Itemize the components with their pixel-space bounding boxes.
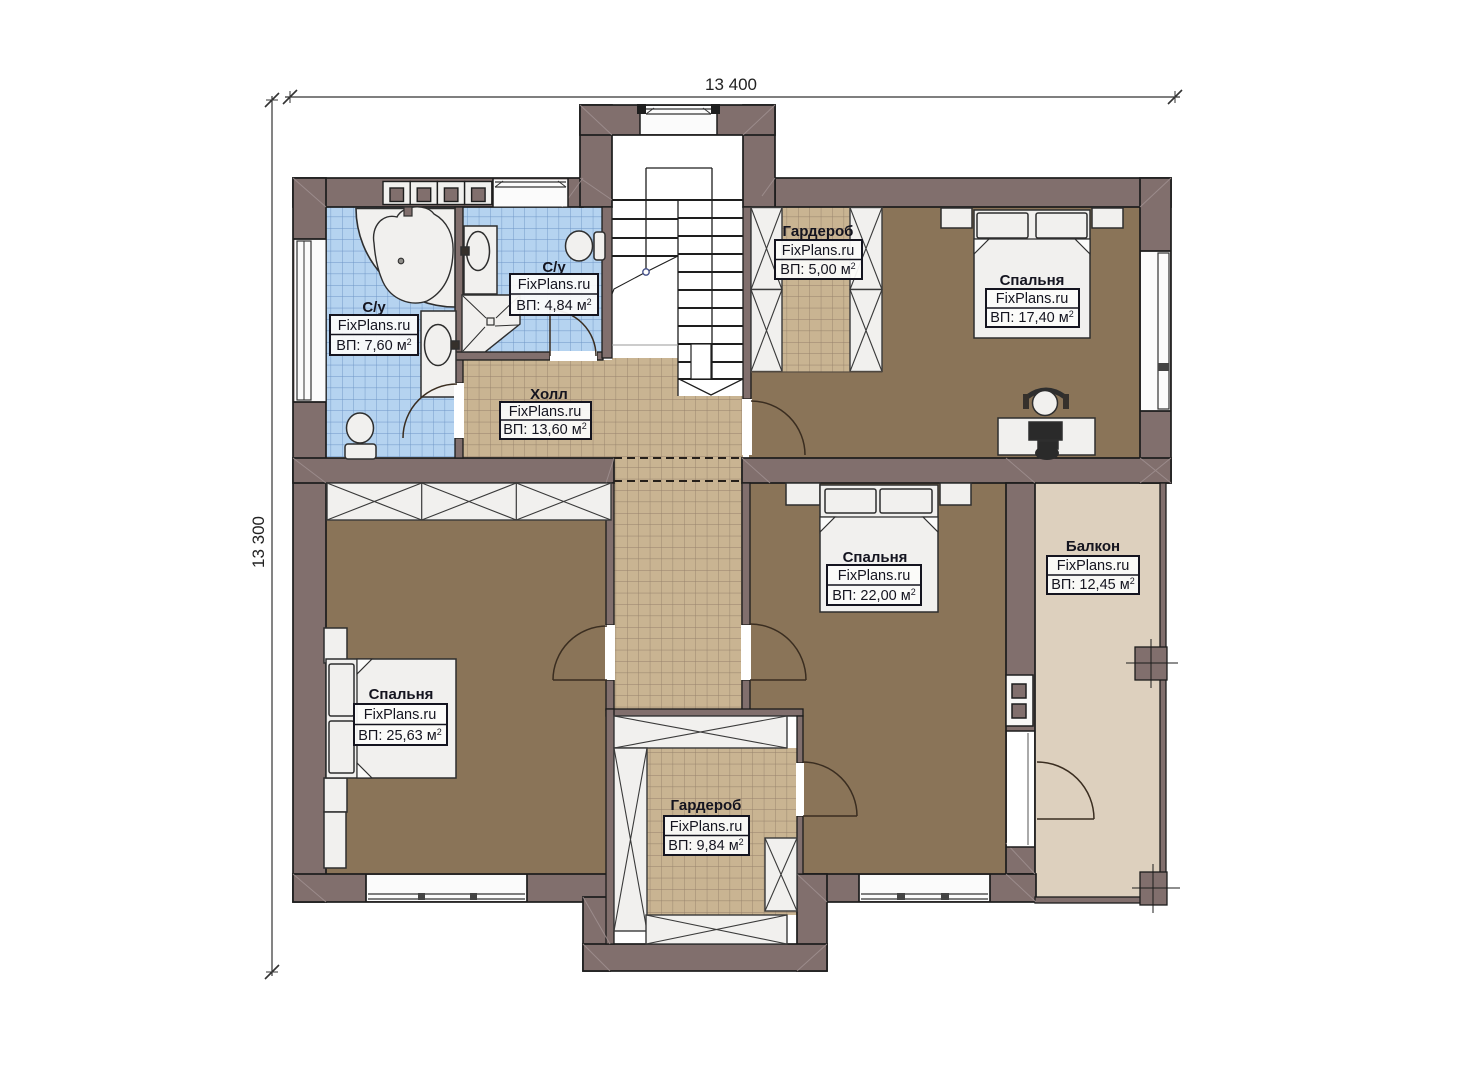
svg-text:ВП: 7,60 м2: ВП: 7,60 м2 [336, 337, 411, 354]
svg-text:ВП: 4,84 м2: ВП: 4,84 м2 [516, 297, 591, 314]
svg-text:Гардероб: Гардероб [671, 797, 742, 814]
svg-text:ВП: 9,84 м2: ВП: 9,84 м2 [668, 837, 743, 854]
svg-text:ВП: 13,60 м2: ВП: 13,60 м2 [503, 421, 586, 438]
svg-text:Гардероб: Гардероб [783, 223, 854, 240]
svg-text:Балкон: Балкон [1066, 538, 1120, 555]
svg-text:FixPlans.ru: FixPlans.ru [838, 568, 911, 584]
svg-text:FixPlans.ru: FixPlans.ru [509, 404, 582, 420]
svg-text:Спальня: Спальня [843, 549, 908, 566]
svg-text:Спальня: Спальня [369, 686, 434, 703]
svg-text:FixPlans.ru: FixPlans.ru [782, 243, 855, 259]
svg-text:FixPlans.ru: FixPlans.ru [1057, 558, 1130, 574]
svg-text:ВП: 5,00 м2: ВП: 5,00 м2 [780, 261, 855, 278]
svg-text:ВП: 25,63 м2: ВП: 25,63 м2 [358, 727, 441, 744]
svg-text:FixPlans.ru: FixPlans.ru [518, 277, 591, 293]
svg-text:13 400: 13 400 [705, 75, 757, 94]
svg-text:FixPlans.ru: FixPlans.ru [338, 318, 411, 334]
svg-text:FixPlans.ru: FixPlans.ru [364, 707, 437, 723]
svg-text:ВП: 22,00 м2: ВП: 22,00 м2 [832, 587, 915, 604]
svg-text:FixPlans.ru: FixPlans.ru [670, 819, 743, 835]
svg-text:ВП: 12,45 м2: ВП: 12,45 м2 [1051, 576, 1134, 593]
svg-text:ВП: 17,40 м2: ВП: 17,40 м2 [990, 309, 1073, 326]
svg-text:С/у: С/у [362, 299, 386, 316]
svg-text:Холл: Холл [530, 386, 568, 403]
svg-text:13 300: 13 300 [249, 516, 268, 568]
svg-text:FixPlans.ru: FixPlans.ru [996, 291, 1069, 307]
svg-text:Спальня: Спальня [1000, 272, 1065, 289]
